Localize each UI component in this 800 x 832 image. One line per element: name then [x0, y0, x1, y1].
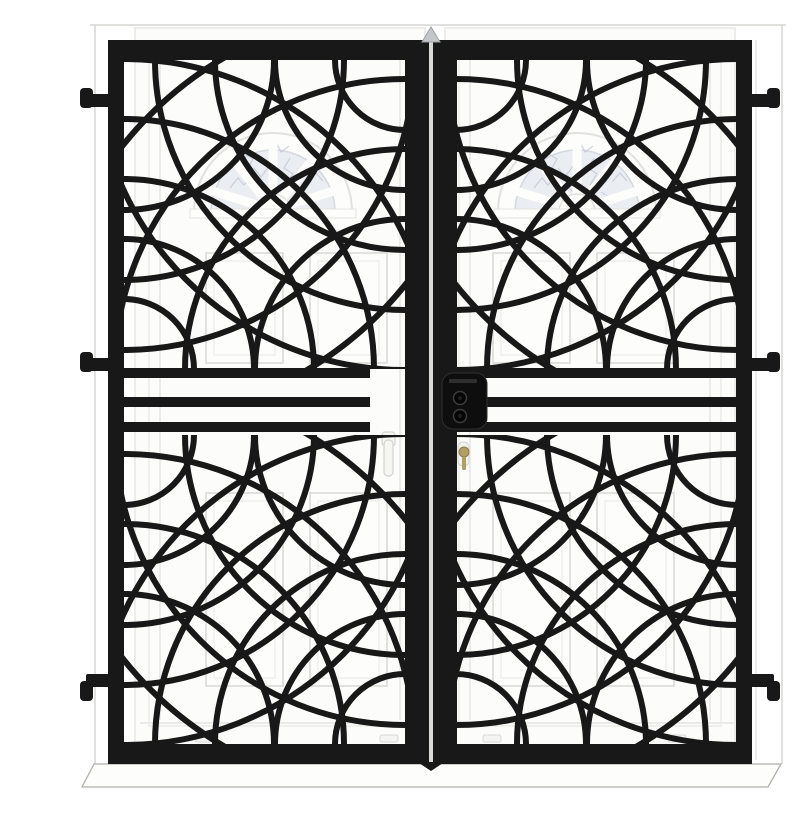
lock-keyhole-top: [458, 396, 462, 400]
lock-keyhole-bottom: [458, 414, 462, 418]
product-image: [40, 16, 800, 816]
leaf-seam: [429, 42, 433, 762]
lock-engraving: [449, 379, 477, 383]
grille-left-stile: [108, 40, 124, 764]
door-handle: [382, 432, 395, 476]
security-grille-photo: [40, 16, 800, 816]
grille-right-stile: [736, 40, 752, 764]
lock-box: [442, 373, 487, 429]
